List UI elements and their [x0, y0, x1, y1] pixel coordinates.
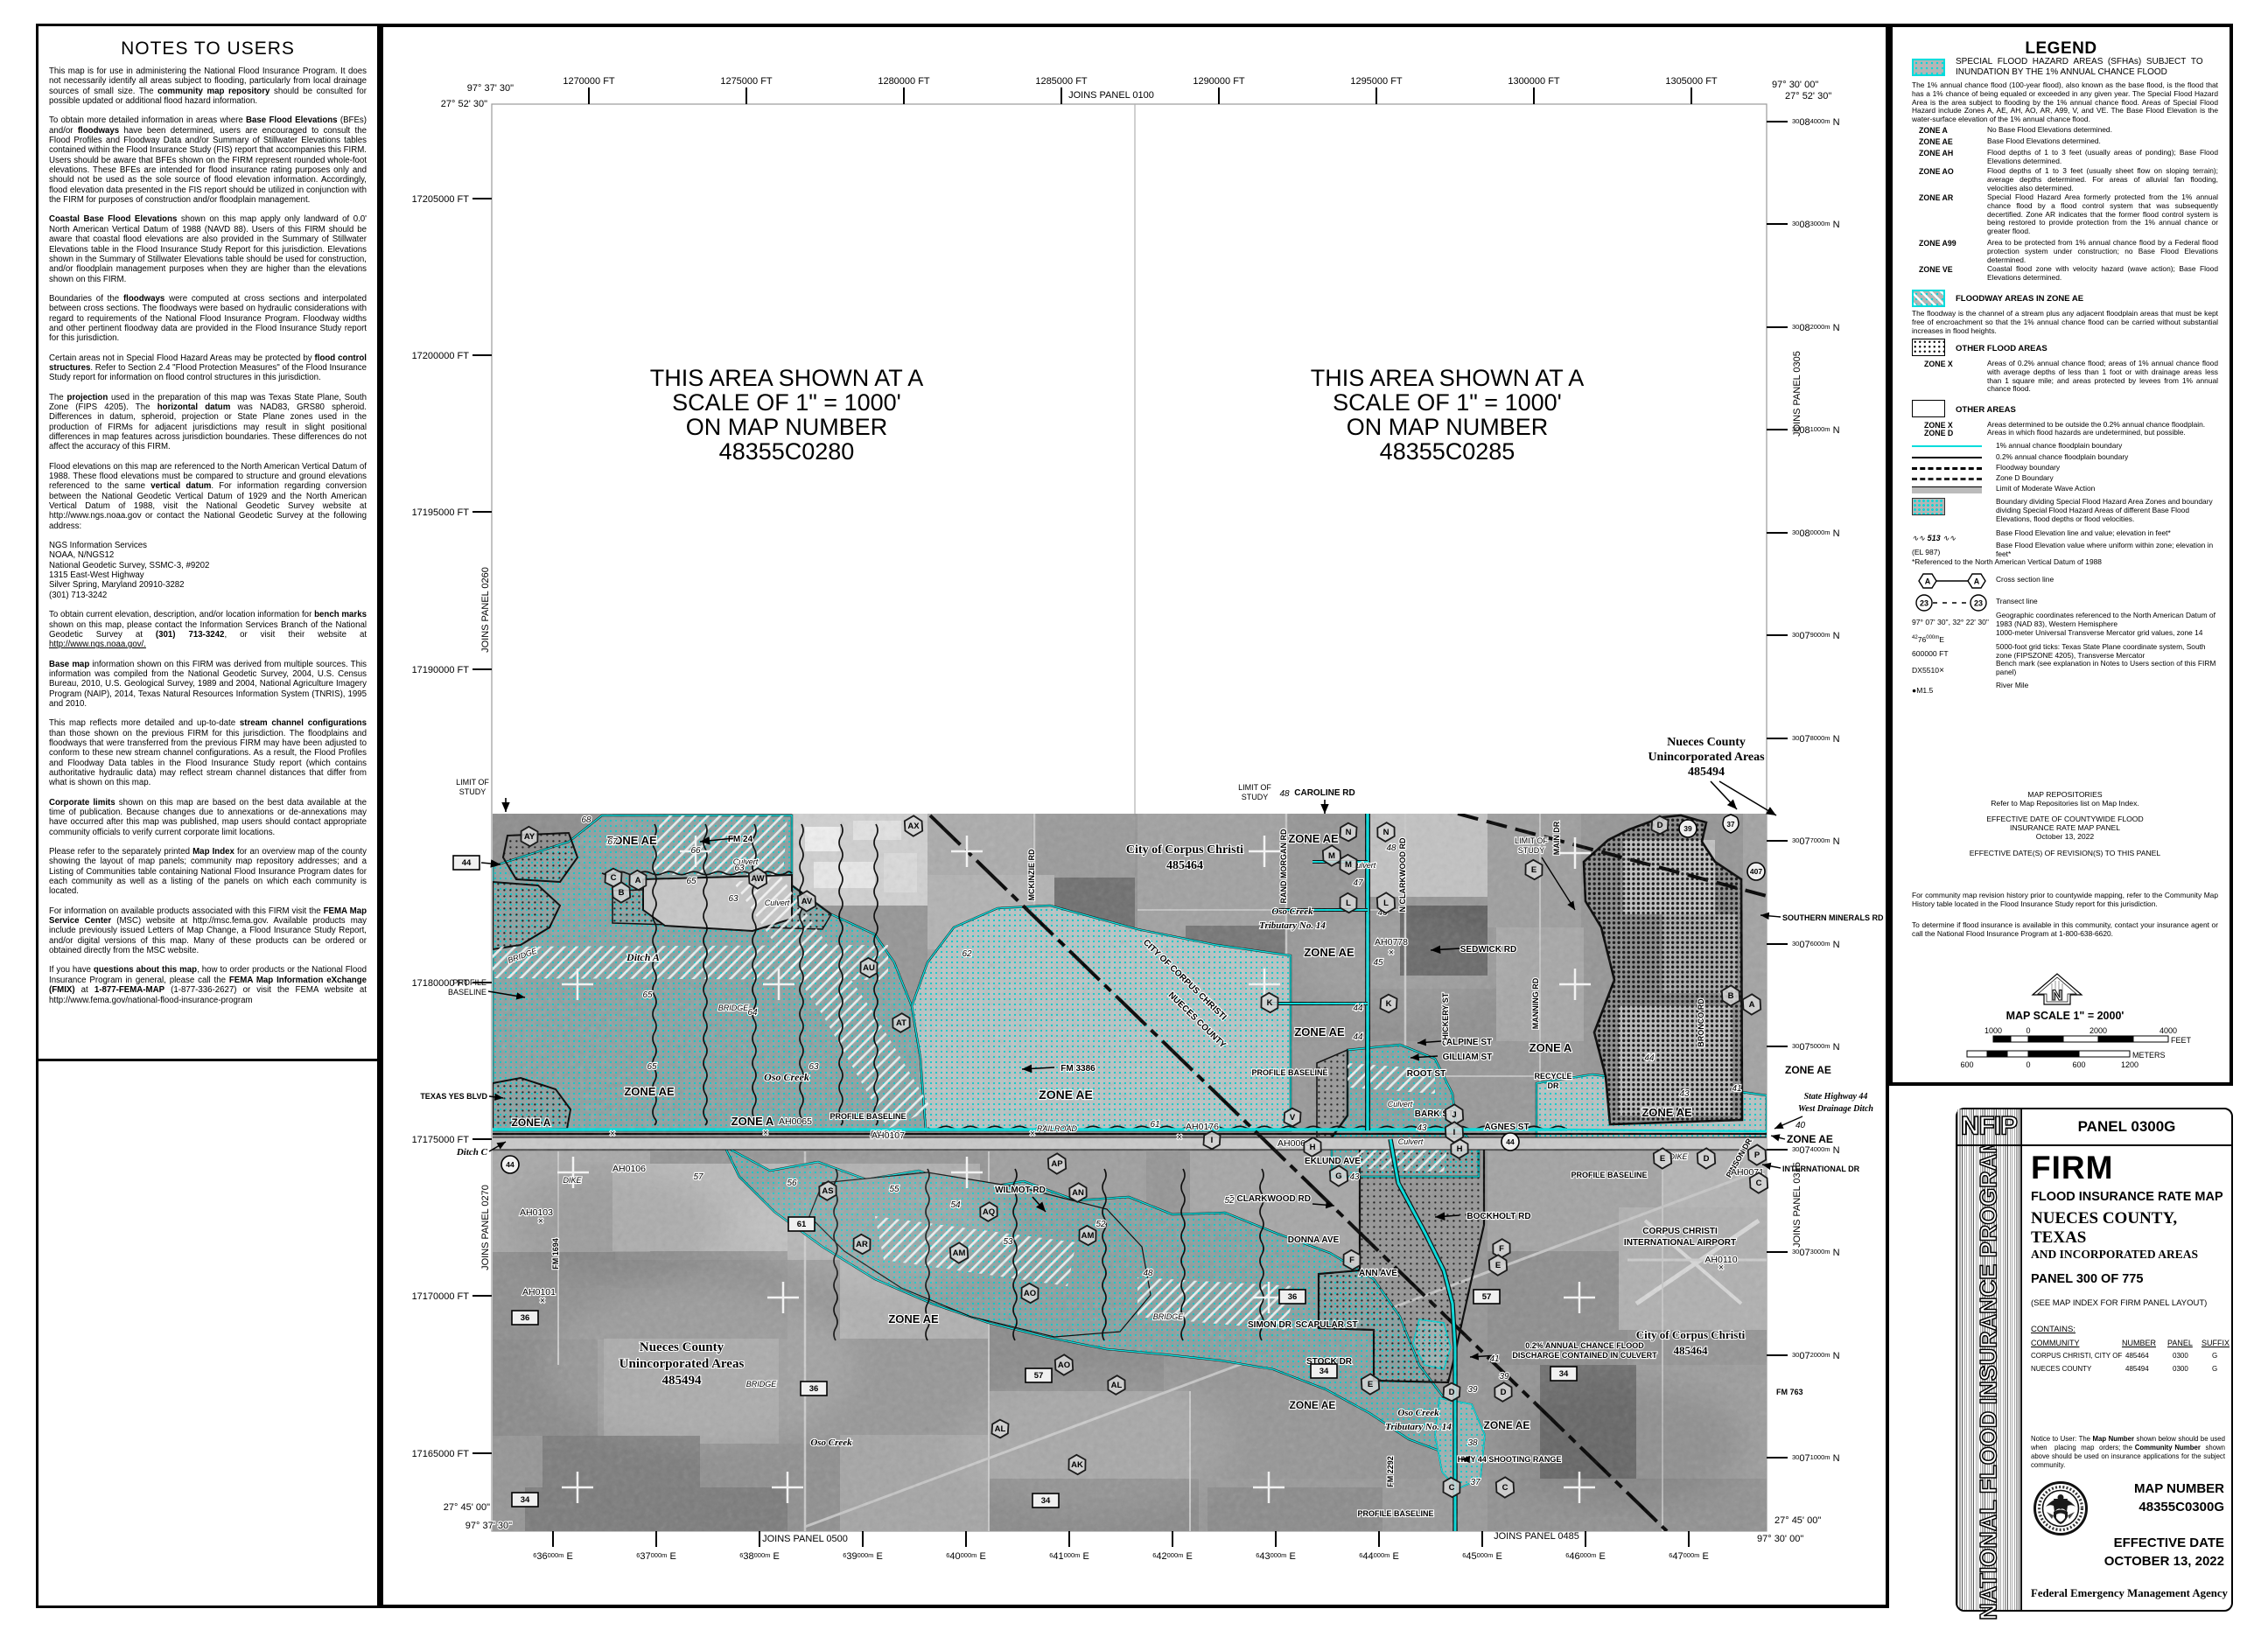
svg-text:F: F	[1499, 1244, 1504, 1254]
svg-text:JOINS PANEL 0485: JOINS PANEL 0485	[1494, 1531, 1579, 1542]
svg-text:ZONE AE: ZONE AE	[1787, 1133, 1833, 1145]
svg-text:44: 44	[506, 1160, 514, 1169]
svg-text:×: ×	[763, 1128, 768, 1138]
svg-text:Ditch A: Ditch A	[626, 951, 660, 963]
svg-text:STUDY: STUDY	[1518, 846, 1545, 855]
svg-text:63: 63	[734, 864, 745, 873]
svg-text:97° 37' 30": 97° 37' 30"	[467, 83, 514, 94]
svg-text:×: ×	[1030, 1129, 1035, 1139]
svg-text:65: 65	[647, 1062, 657, 1072]
svg-text:17200000 FT: 17200000 FT	[412, 351, 470, 361]
svg-text:FM 3386: FM 3386	[1060, 1064, 1095, 1074]
svg-text:AN: AN	[1072, 1188, 1084, 1198]
svg-text:K: K	[1267, 998, 1273, 1008]
svg-text:1305000 FT: 1305000 FT	[1665, 76, 1718, 87]
svg-text:AH0103: AH0103	[520, 1207, 553, 1218]
svg-text:B: B	[619, 888, 625, 898]
svg-text:36: 36	[521, 1313, 530, 1323]
svg-text:34: 34	[1041, 1496, 1051, 1506]
svg-text:52: 52	[1224, 1196, 1235, 1206]
svg-text:STUDY: STUDY	[459, 787, 486, 796]
svg-text:P: P	[1754, 1151, 1760, 1160]
svg-text:39: 39	[1467, 1385, 1478, 1395]
svg-text:1285000 FT: 1285000 FT	[1035, 76, 1088, 87]
svg-text:D: D	[1704, 1154, 1710, 1164]
svg-text:63: 63	[728, 894, 738, 904]
svg-text:64: 64	[747, 1008, 758, 1018]
svg-text:1290000 FT: 1290000 FT	[1193, 76, 1245, 87]
svg-text:AM: AM	[953, 1249, 966, 1258]
svg-text:1300000 FT: 1300000 FT	[1508, 76, 1560, 87]
svg-text:30075000m N: 30075000m N	[1792, 1042, 1840, 1053]
svg-text:45: 45	[1373, 958, 1383, 968]
svg-text:AM: AM	[1081, 1231, 1095, 1241]
svg-text:55: 55	[889, 1185, 899, 1194]
svg-text:Oso Creek: Oso Creek	[810, 1438, 852, 1448]
svg-text:SEDWICK RD: SEDWICK RD	[1460, 945, 1516, 955]
svg-text:M: M	[1328, 851, 1335, 861]
svg-text:43: 43	[1349, 1172, 1360, 1182]
svg-text:1270000 FT: 1270000 FT	[563, 76, 615, 87]
svg-text:17165000 FT: 17165000 FT	[412, 1449, 470, 1459]
svg-text:17170000 FT: 17170000 FT	[412, 1291, 470, 1302]
svg-text:AH0778: AH0778	[1375, 937, 1408, 948]
svg-text:L: L	[1383, 899, 1389, 908]
svg-text:637000m E: 637000m E	[636, 1551, 676, 1562]
svg-text:ZONE AE: ZONE AE	[1288, 832, 1339, 845]
svg-text:PROFILE BASELINE: PROFILE BASELINE	[1251, 1068, 1327, 1077]
svg-text:30072000m N: 30072000m N	[1792, 1351, 1840, 1361]
svg-text:485464: 485464	[1674, 1344, 1709, 1357]
svg-text:L: L	[1346, 899, 1351, 908]
svg-text:V: V	[1290, 1113, 1296, 1123]
svg-text:644000m E: 644000m E	[1359, 1551, 1399, 1562]
svg-text:FM 24: FM 24	[728, 835, 753, 844]
svg-text:B: B	[1728, 991, 1734, 1001]
svg-text:AH0107: AH0107	[871, 1130, 905, 1141]
svg-text:WILMOT RD: WILMOT RD	[995, 1186, 1046, 1195]
svg-text:ZONE AE: ZONE AE	[1294, 1025, 1345, 1039]
svg-text:MAIN DR: MAIN DR	[1552, 821, 1561, 855]
svg-text:BOCKHOLT RD: BOCKHOLT RD	[1466, 1212, 1530, 1221]
svg-text:62: 62	[962, 949, 972, 959]
svg-text:GILLIAM ST: GILLIAM ST	[1443, 1053, 1493, 1062]
svg-text:68: 68	[581, 815, 591, 825]
svg-text:Nueces County: Nueces County	[640, 1340, 724, 1354]
svg-text:47: 47	[1353, 878, 1363, 888]
svg-text:PROFILE: PROFILE	[452, 978, 486, 987]
svg-text:ZONE A: ZONE A	[1529, 1041, 1572, 1054]
svg-text:44: 44	[1353, 1004, 1363, 1013]
svg-text:ZONE A: ZONE A	[731, 1115, 774, 1128]
svg-text:44: 44	[462, 858, 472, 868]
svg-text:H: H	[1457, 1144, 1463, 1154]
svg-text:39: 39	[1499, 1372, 1509, 1382]
svg-text:Oso Creek: Oso Creek	[1397, 1408, 1439, 1418]
svg-text:BRIDGE: BRIDGE	[746, 1380, 778, 1389]
svg-text:AL: AL	[995, 1424, 1006, 1434]
svg-text:57: 57	[693, 1172, 703, 1182]
svg-text:ZONE AE: ZONE AE	[1484, 1419, 1530, 1431]
svg-text:39: 39	[1683, 824, 1692, 833]
svg-text:×: ×	[1718, 1263, 1724, 1273]
svg-text:FM 1694: FM 1694	[551, 1238, 560, 1270]
svg-text:M: M	[1345, 860, 1352, 870]
svg-text:C: C	[1502, 1483, 1508, 1493]
svg-text:AH0065: AH0065	[779, 1116, 812, 1127]
svg-text:BRIDGE: BRIDGE	[1153, 1312, 1185, 1321]
svg-text:City of Corpus Christi: City of Corpus Christi	[1636, 1328, 1746, 1341]
svg-text:67: 67	[607, 837, 618, 847]
svg-text:AH0176: AH0176	[1186, 1122, 1219, 1132]
svg-text:AY: AY	[524, 832, 535, 842]
svg-text:J: J	[1452, 1110, 1456, 1120]
svg-text:30073000m N: 30073000m N	[1792, 1248, 1840, 1258]
svg-text:48: 48	[1386, 843, 1396, 853]
svg-text:D: D	[1501, 1388, 1507, 1397]
svg-text:Culvert: Culvert	[1398, 1137, 1424, 1146]
svg-text:I: I	[1211, 1136, 1214, 1145]
svg-text:LIMIT OF: LIMIT OF	[456, 778, 489, 787]
svg-text:PROFILE BASELINE: PROFILE BASELINE	[829, 1112, 906, 1121]
svg-text:JOINS PANEL 0260: JOINS PANEL 0260	[480, 567, 491, 653]
svg-text:34: 34	[1559, 1369, 1569, 1379]
svg-text:485494: 485494	[662, 1374, 703, 1388]
svg-text:AX: AX	[907, 822, 920, 831]
svg-text:D: D	[1449, 1388, 1455, 1397]
svg-text:S CLARKWOOD RD: S CLARKWOOD RD	[1228, 1194, 1311, 1204]
svg-text:ON MAP NUMBER: ON MAP NUMBER	[686, 414, 888, 440]
svg-text:97° 30' 00": 97° 30' 00"	[1757, 1534, 1803, 1544]
svg-text:×: ×	[540, 1296, 545, 1306]
svg-text:53: 53	[1003, 1237, 1013, 1247]
svg-text:636000m E: 636000m E	[533, 1551, 573, 1562]
svg-text:34: 34	[1319, 1367, 1329, 1376]
svg-text:1280000 FT: 1280000 FT	[878, 76, 930, 87]
svg-text:Nueces County: Nueces County	[1667, 736, 1746, 749]
svg-text:SCALE OF 1" = 1000': SCALE OF 1" = 1000'	[672, 389, 901, 416]
svg-text:N: N	[1383, 828, 1389, 837]
svg-text:61: 61	[797, 1220, 807, 1229]
svg-text:EKLUND AVE: EKLUND AVE	[1305, 1157, 1361, 1166]
svg-text:RECYCLE: RECYCLE	[1534, 1072, 1571, 1081]
svg-text:52: 52	[1095, 1220, 1106, 1229]
svg-text:48: 48	[1143, 1269, 1153, 1278]
svg-text:37: 37	[1727, 821, 1735, 829]
svg-text:65: 65	[642, 990, 653, 1000]
svg-text:17195000 FT: 17195000 FT	[412, 507, 470, 518]
svg-text:44: 44	[1353, 1032, 1363, 1042]
svg-text:ANN AVE: ANN AVE	[1359, 1269, 1397, 1278]
svg-text:30078000m N: 30078000m N	[1792, 734, 1840, 745]
svg-text:INTERNATIONAL DR: INTERNATIONAL DR	[1782, 1165, 1860, 1173]
svg-text:E: E	[1368, 1380, 1373, 1389]
svg-text:CORPUS CHRISTI: CORPUS CHRISTI	[1642, 1227, 1718, 1236]
svg-text:AGNES ST: AGNES ST	[1484, 1123, 1529, 1132]
svg-text:485464: 485464	[1166, 859, 1203, 872]
svg-text:JOINS PANEL 0100: JOINS PANEL 0100	[1068, 90, 1154, 101]
svg-text:Culvert: Culvert	[765, 899, 790, 907]
svg-text:JOINS PANEL 0500: JOINS PANEL 0500	[762, 1534, 848, 1544]
svg-text:37: 37	[1470, 1478, 1480, 1487]
svg-text:643000m E: 643000m E	[1256, 1551, 1296, 1562]
svg-text:ZONE AE: ZONE AE	[1039, 1088, 1093, 1102]
svg-text:C: C	[1756, 1179, 1762, 1188]
svg-text:SOUTHERN MINERALS RD: SOUTHERN MINERALS RD	[1782, 913, 1884, 922]
svg-text:N: N	[1346, 828, 1352, 837]
svg-text:27° 52' 30": 27° 52' 30"	[441, 99, 487, 109]
svg-text:65: 65	[686, 877, 696, 886]
svg-text:ZONE AE: ZONE AE	[624, 1085, 675, 1098]
svg-text:485494: 485494	[1688, 766, 1725, 779]
svg-text:641000m E: 641000m E	[1049, 1551, 1089, 1562]
svg-text:E: E	[1660, 1154, 1665, 1164]
svg-text:SCALE OF 1" = 1000': SCALE OF 1" = 1000'	[1333, 389, 1562, 416]
svg-text:LIMIT OF: LIMIT OF	[1515, 836, 1548, 845]
svg-text:Unincorporated Areas: Unincorporated Areas	[1648, 751, 1765, 764]
svg-text:FM 2292: FM 2292	[1386, 1456, 1395, 1487]
svg-text:PROFILE BASELINE: PROFILE BASELINE	[1357, 1509, 1433, 1518]
svg-text:CAROLINE RD: CAROLINE RD	[1294, 788, 1354, 798]
svg-text:AL: AL	[1111, 1381, 1123, 1390]
svg-text:G: G	[1335, 1172, 1341, 1181]
svg-text:ZONE A: ZONE A	[512, 1116, 551, 1129]
svg-text:A: A	[635, 876, 641, 885]
svg-text:ZONE AE: ZONE AE	[888, 1312, 939, 1326]
svg-text:43: 43	[1679, 1089, 1690, 1099]
svg-text:STUDY: STUDY	[1242, 793, 1269, 801]
svg-text:JOINS PANEL 0305: JOINS PANEL 0305	[1792, 351, 1802, 437]
svg-text:44: 44	[1506, 1137, 1515, 1146]
svg-text:N CLARKWOOD RD: N CLARKWOOD RD	[1398, 837, 1407, 912]
svg-text:642000m E: 642000m E	[1152, 1551, 1193, 1562]
svg-text:27° 52' 30": 27° 52' 30"	[1785, 91, 1831, 101]
svg-text:BRONCO RD: BRONCO RD	[1697, 998, 1705, 1047]
svg-text:City of Corpus Christi: City of Corpus Christi	[1126, 843, 1243, 857]
svg-text:K: K	[1386, 999, 1392, 1009]
svg-text:17175000 FT: 17175000 FT	[412, 1135, 470, 1145]
svg-text:34: 34	[521, 1495, 530, 1505]
svg-text:40: 40	[1795, 1121, 1806, 1130]
svg-text:41: 41	[1489, 1354, 1499, 1364]
svg-text:30083000m N: 30083000m N	[1792, 220, 1840, 230]
svg-text:ZONE AE: ZONE AE	[1785, 1064, 1831, 1076]
svg-text:1275000 FT: 1275000 FT	[720, 76, 773, 87]
svg-text:639000m E: 639000m E	[843, 1551, 883, 1562]
svg-text:30082000m N: 30082000m N	[1792, 323, 1840, 333]
svg-text:61: 61	[1150, 1120, 1159, 1130]
svg-text:AW: AW	[751, 874, 764, 884]
svg-text:×: ×	[538, 1216, 543, 1227]
svg-text:0.2% ANNUAL CHANCE FLOOD: 0.2% ANNUAL CHANCE FLOOD	[1525, 1341, 1644, 1350]
svg-text:AT: AT	[896, 1018, 906, 1028]
svg-text:DONNA AVE: DONNA AVE	[1288, 1235, 1340, 1245]
svg-text:44: 44	[1644, 1053, 1655, 1063]
svg-text:×: ×	[610, 1129, 615, 1139]
svg-text:30074000m N: 30074000m N	[1792, 1145, 1840, 1156]
svg-text:HWY 44 SHOOTING RANGE: HWY 44 SHOOTING RANGE	[1458, 1455, 1562, 1464]
svg-text:DIKE: DIKE	[563, 1176, 582, 1185]
svg-text:AP: AP	[1051, 1159, 1063, 1169]
svg-text:66: 66	[690, 846, 701, 856]
svg-text:Tributary No. 14: Tributary No. 14	[1259, 920, 1326, 931]
svg-text:MANNING RD: MANNING RD	[1531, 977, 1540, 1029]
svg-text:AO: AO	[1058, 1361, 1070, 1370]
svg-text:DR: DR	[1548, 1081, 1559, 1090]
svg-text:407: 407	[1750, 867, 1762, 876]
svg-text:41: 41	[1732, 1084, 1741, 1094]
svg-text:FM 763: FM 763	[1776, 1388, 1803, 1396]
svg-text:645000m E: 645000m E	[1462, 1551, 1502, 1562]
svg-text:Oso Creek: Oso Creek	[1271, 906, 1313, 917]
svg-text:30079000m N: 30079000m N	[1792, 631, 1840, 641]
svg-text:30076000m N: 30076000m N	[1792, 940, 1840, 950]
svg-text:LIMIT OF: LIMIT OF	[1238, 783, 1271, 792]
svg-text:57: 57	[1034, 1371, 1044, 1381]
svg-text:D: D	[1657, 821, 1663, 830]
svg-text:57: 57	[1482, 1292, 1492, 1302]
svg-text:640000m E: 640000m E	[946, 1551, 986, 1562]
svg-text:30084000m N: 30084000m N	[1792, 117, 1840, 128]
svg-text:43: 43	[1417, 1123, 1427, 1133]
svg-text:ALPINE ST: ALPINE ST	[1446, 1038, 1492, 1047]
svg-text:AV: AV	[801, 897, 813, 906]
svg-text:ZONE AE: ZONE AE	[1304, 946, 1354, 959]
svg-text:DISCHARGE CONTAINED IN CULVERT: DISCHARGE CONTAINED IN CULVERT	[1512, 1351, 1657, 1360]
svg-text:West Drainage Ditch: West Drainage Ditch	[1798, 1104, 1873, 1114]
svg-text:AR: AR	[856, 1240, 868, 1249]
svg-text:Tributary No. 14: Tributary No. 14	[1385, 1422, 1452, 1432]
svg-text:SIMON DR: SIMON DR	[1248, 1320, 1292, 1330]
svg-text:Oso Creek: Oso Creek	[764, 1071, 809, 1083]
svg-text:ZONE AE: ZONE AE	[1290, 1399, 1336, 1411]
svg-text:ROOT ST: ROOT ST	[1407, 1069, 1445, 1079]
svg-text:97° 37' 30": 97° 37' 30"	[465, 1521, 512, 1531]
svg-text:27° 45' 00": 27° 45' 00"	[444, 1502, 490, 1513]
svg-text:MCKINZIE RD: MCKINZIE RD	[1027, 849, 1036, 900]
svg-text:PROFILE BASELINE: PROFILE BASELINE	[1571, 1171, 1647, 1179]
svg-text:THIS AREA SHOWN AT A: THIS AREA SHOWN AT A	[650, 365, 924, 391]
svg-text:27° 45' 00": 27° 45' 00"	[1774, 1515, 1821, 1526]
svg-text:1295000 FT: 1295000 FT	[1350, 76, 1403, 87]
svg-text:48355C0280: 48355C0280	[719, 438, 855, 465]
svg-text:INTERNATIONAL AIRPORT: INTERNATIONAL AIRPORT	[1624, 1238, 1736, 1248]
svg-text:646000m E: 646000m E	[1565, 1551, 1606, 1562]
svg-text:×: ×	[1177, 1132, 1182, 1143]
svg-text:647000m E: 647000m E	[1669, 1551, 1709, 1562]
svg-text:JOINS PANEL 0315: JOINS PANEL 0315	[1792, 1162, 1802, 1248]
svg-text:97° 30' 00": 97° 30' 00"	[1772, 80, 1818, 90]
svg-text:AS: AS	[822, 1186, 833, 1196]
svg-text:17190000 FT: 17190000 FT	[412, 665, 470, 675]
svg-text:36: 36	[809, 1384, 819, 1394]
svg-text:AU: AU	[863, 963, 875, 973]
svg-text:Culvert: Culvert	[1388, 1100, 1413, 1109]
svg-text:63: 63	[808, 1062, 819, 1072]
svg-text:Unincorporated Areas: Unincorporated Areas	[619, 1357, 745, 1371]
svg-text:C: C	[611, 873, 617, 883]
svg-text:C: C	[1449, 1483, 1455, 1493]
svg-text:48355C0285: 48355C0285	[1380, 438, 1515, 465]
svg-text:56: 56	[787, 1179, 797, 1188]
svg-text:I: I	[1453, 1128, 1456, 1137]
svg-text:48: 48	[1279, 789, 1290, 799]
svg-text:17205000 FT: 17205000 FT	[412, 194, 470, 205]
svg-text:E: E	[1495, 1261, 1501, 1270]
svg-text:State Highway 44: State Highway 44	[1804, 1092, 1868, 1102]
svg-text:SCAPULAR ST: SCAPULAR ST	[1295, 1320, 1357, 1330]
svg-text:BRIDGE: BRIDGE	[718, 1004, 750, 1012]
svg-text:RAILROAD: RAILROAD	[1037, 1124, 1078, 1133]
svg-text:A: A	[1749, 1000, 1755, 1010]
svg-text:AO: AO	[1024, 1289, 1036, 1298]
svg-text:38: 38	[1467, 1438, 1478, 1448]
svg-text:AH0106: AH0106	[612, 1164, 646, 1174]
svg-text:54: 54	[950, 1200, 961, 1210]
svg-text:×: ×	[1389, 948, 1394, 958]
svg-text:30080000m N: 30080000m N	[1792, 528, 1840, 539]
svg-text:30071000m N: 30071000m N	[1792, 1453, 1840, 1464]
svg-text:E: E	[1531, 865, 1536, 875]
svg-text:AK: AK	[1071, 1460, 1083, 1470]
svg-text:BASELINE: BASELINE	[448, 988, 486, 997]
svg-text:36: 36	[1288, 1292, 1298, 1302]
svg-text:TEXAS YES BLVD: TEXAS YES BLVD	[420, 1092, 487, 1101]
svg-text:RAND MORGAN RD: RAND MORGAN RD	[1279, 829, 1288, 903]
svg-text:THIS AREA SHOWN AT A: THIS AREA SHOWN AT A	[1311, 365, 1585, 391]
svg-text:638000m E: 638000m E	[739, 1551, 780, 1562]
svg-text:AQ: AQ	[983, 1207, 995, 1217]
svg-text:Ditch C: Ditch C	[456, 1147, 488, 1158]
svg-text:30077000m N: 30077000m N	[1792, 836, 1840, 847]
svg-text:JOINS PANEL 0270: JOINS PANEL 0270	[480, 1185, 491, 1270]
svg-text:H: H	[1310, 1143, 1316, 1152]
svg-text:F: F	[1349, 1256, 1354, 1265]
svg-text:ON MAP NUMBER: ON MAP NUMBER	[1347, 414, 1549, 440]
svg-text:ZONE AE: ZONE AE	[1641, 1106, 1692, 1119]
